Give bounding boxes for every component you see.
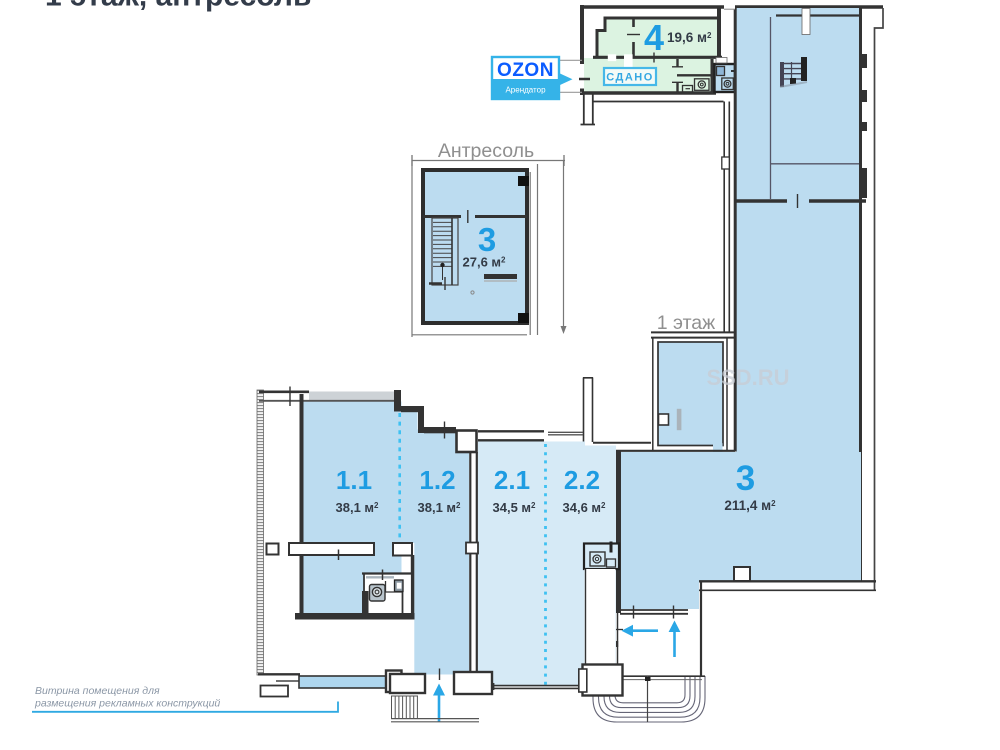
svg-text:1.1: 1.1 [336, 465, 372, 495]
svg-text:3: 3 [478, 221, 496, 258]
svg-text:размещения рекламных конструкц: размещения рекламных конструкций [34, 698, 220, 710]
svg-text:1.2: 1.2 [419, 465, 455, 495]
svg-text:38,1 м2: 38,1 м2 [418, 500, 462, 515]
svg-text:SSD.RU: SSD.RU [706, 365, 789, 390]
svg-text:34,6 м2: 34,6 м2 [563, 500, 607, 515]
svg-text:1 этаж: 1 этаж [657, 312, 715, 334]
svg-text:2.2: 2.2 [564, 465, 600, 495]
svg-text:СДАНО: СДАНО [606, 72, 654, 84]
svg-text:34,5 м2: 34,5 м2 [493, 500, 537, 515]
svg-text:1 этаж, антресоль: 1 этаж, антресоль [45, 0, 311, 13]
svg-text:Арендатор: Арендатор [505, 86, 546, 95]
svg-text:38,1 м2: 38,1 м2 [336, 500, 380, 515]
svg-text:19,6 м2: 19,6 м2 [667, 30, 712, 45]
svg-text:Витрина помещения для: Витрина помещения для [35, 685, 160, 697]
svg-text:2.1: 2.1 [494, 465, 530, 495]
svg-text:3: 3 [736, 459, 755, 498]
svg-text:OZON: OZON [497, 60, 554, 81]
svg-text:211,4 м2: 211,4 м2 [724, 498, 776, 513]
svg-text:27,6 м2: 27,6 м2 [463, 255, 507, 270]
svg-text:4: 4 [644, 17, 664, 58]
svg-text:Антресоль: Антресоль [438, 140, 534, 162]
